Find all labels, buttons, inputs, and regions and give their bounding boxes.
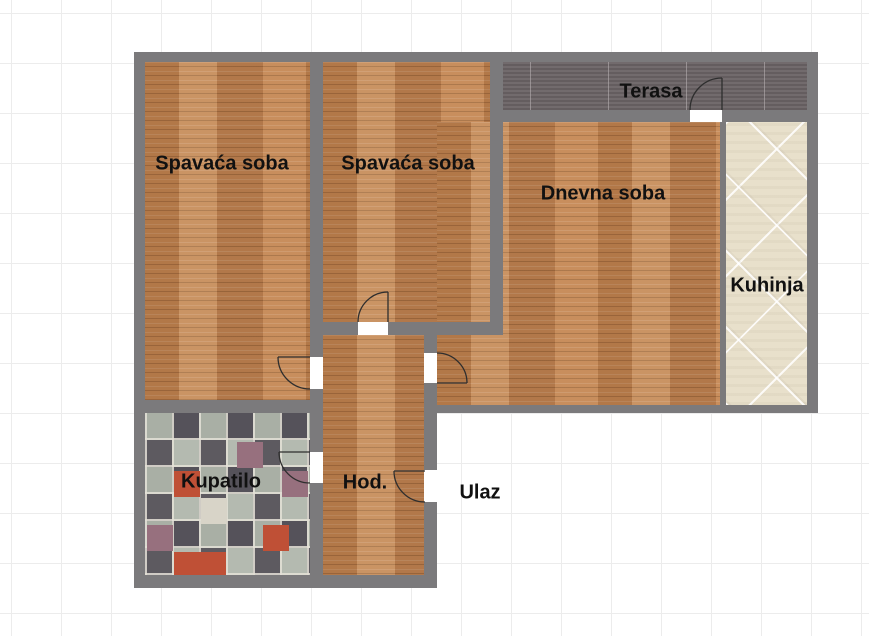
terrace-door-opening [690, 110, 722, 122]
floor-plan-canvas: Spavaća soba Spavaća soba Dnevna soba Ku… [0, 0, 869, 636]
wall-bedroom2-bottom [310, 322, 503, 335]
living-room-label: Dnevna soba [541, 183, 665, 206]
wall-bedrooms-divider [310, 52, 323, 575]
living-room-floor [437, 122, 720, 405]
bathroom-label: Kupatilo [181, 471, 261, 494]
bedroom2-door-opening [358, 322, 388, 335]
wall-outer-left [134, 52, 145, 588]
terrace-label: Terasa [619, 81, 682, 104]
wall-outer-top [134, 52, 818, 62]
hallway-label: Hod. [343, 472, 387, 495]
kitchen-floor [726, 122, 807, 405]
living-room-door-opening [424, 353, 437, 383]
bedroom1-door-opening [310, 357, 323, 389]
kitchen-label: Kuhinja [730, 275, 803, 298]
entrance-label: Ulaz [459, 482, 500, 505]
bathroom-floor [145, 413, 310, 575]
entrance-door-opening [424, 470, 437, 502]
bedroom2-label: Spavaća soba [341, 153, 474, 176]
bathroom-door-opening [310, 452, 323, 483]
wall-kitchen-divider [720, 122, 726, 405]
wall-outer-right [807, 52, 818, 413]
wall-bathroom-top [134, 400, 323, 413]
wall-terrace-bottom [490, 110, 818, 122]
bedroom1-floor [145, 62, 310, 400]
wall-outer-bottom-left [134, 575, 437, 588]
hallway-floor [323, 335, 424, 575]
wall-outer-bottom-right [424, 405, 818, 413]
bedroom1-label: Spavaća soba [155, 153, 288, 176]
wall-living-room-left [490, 52, 503, 335]
